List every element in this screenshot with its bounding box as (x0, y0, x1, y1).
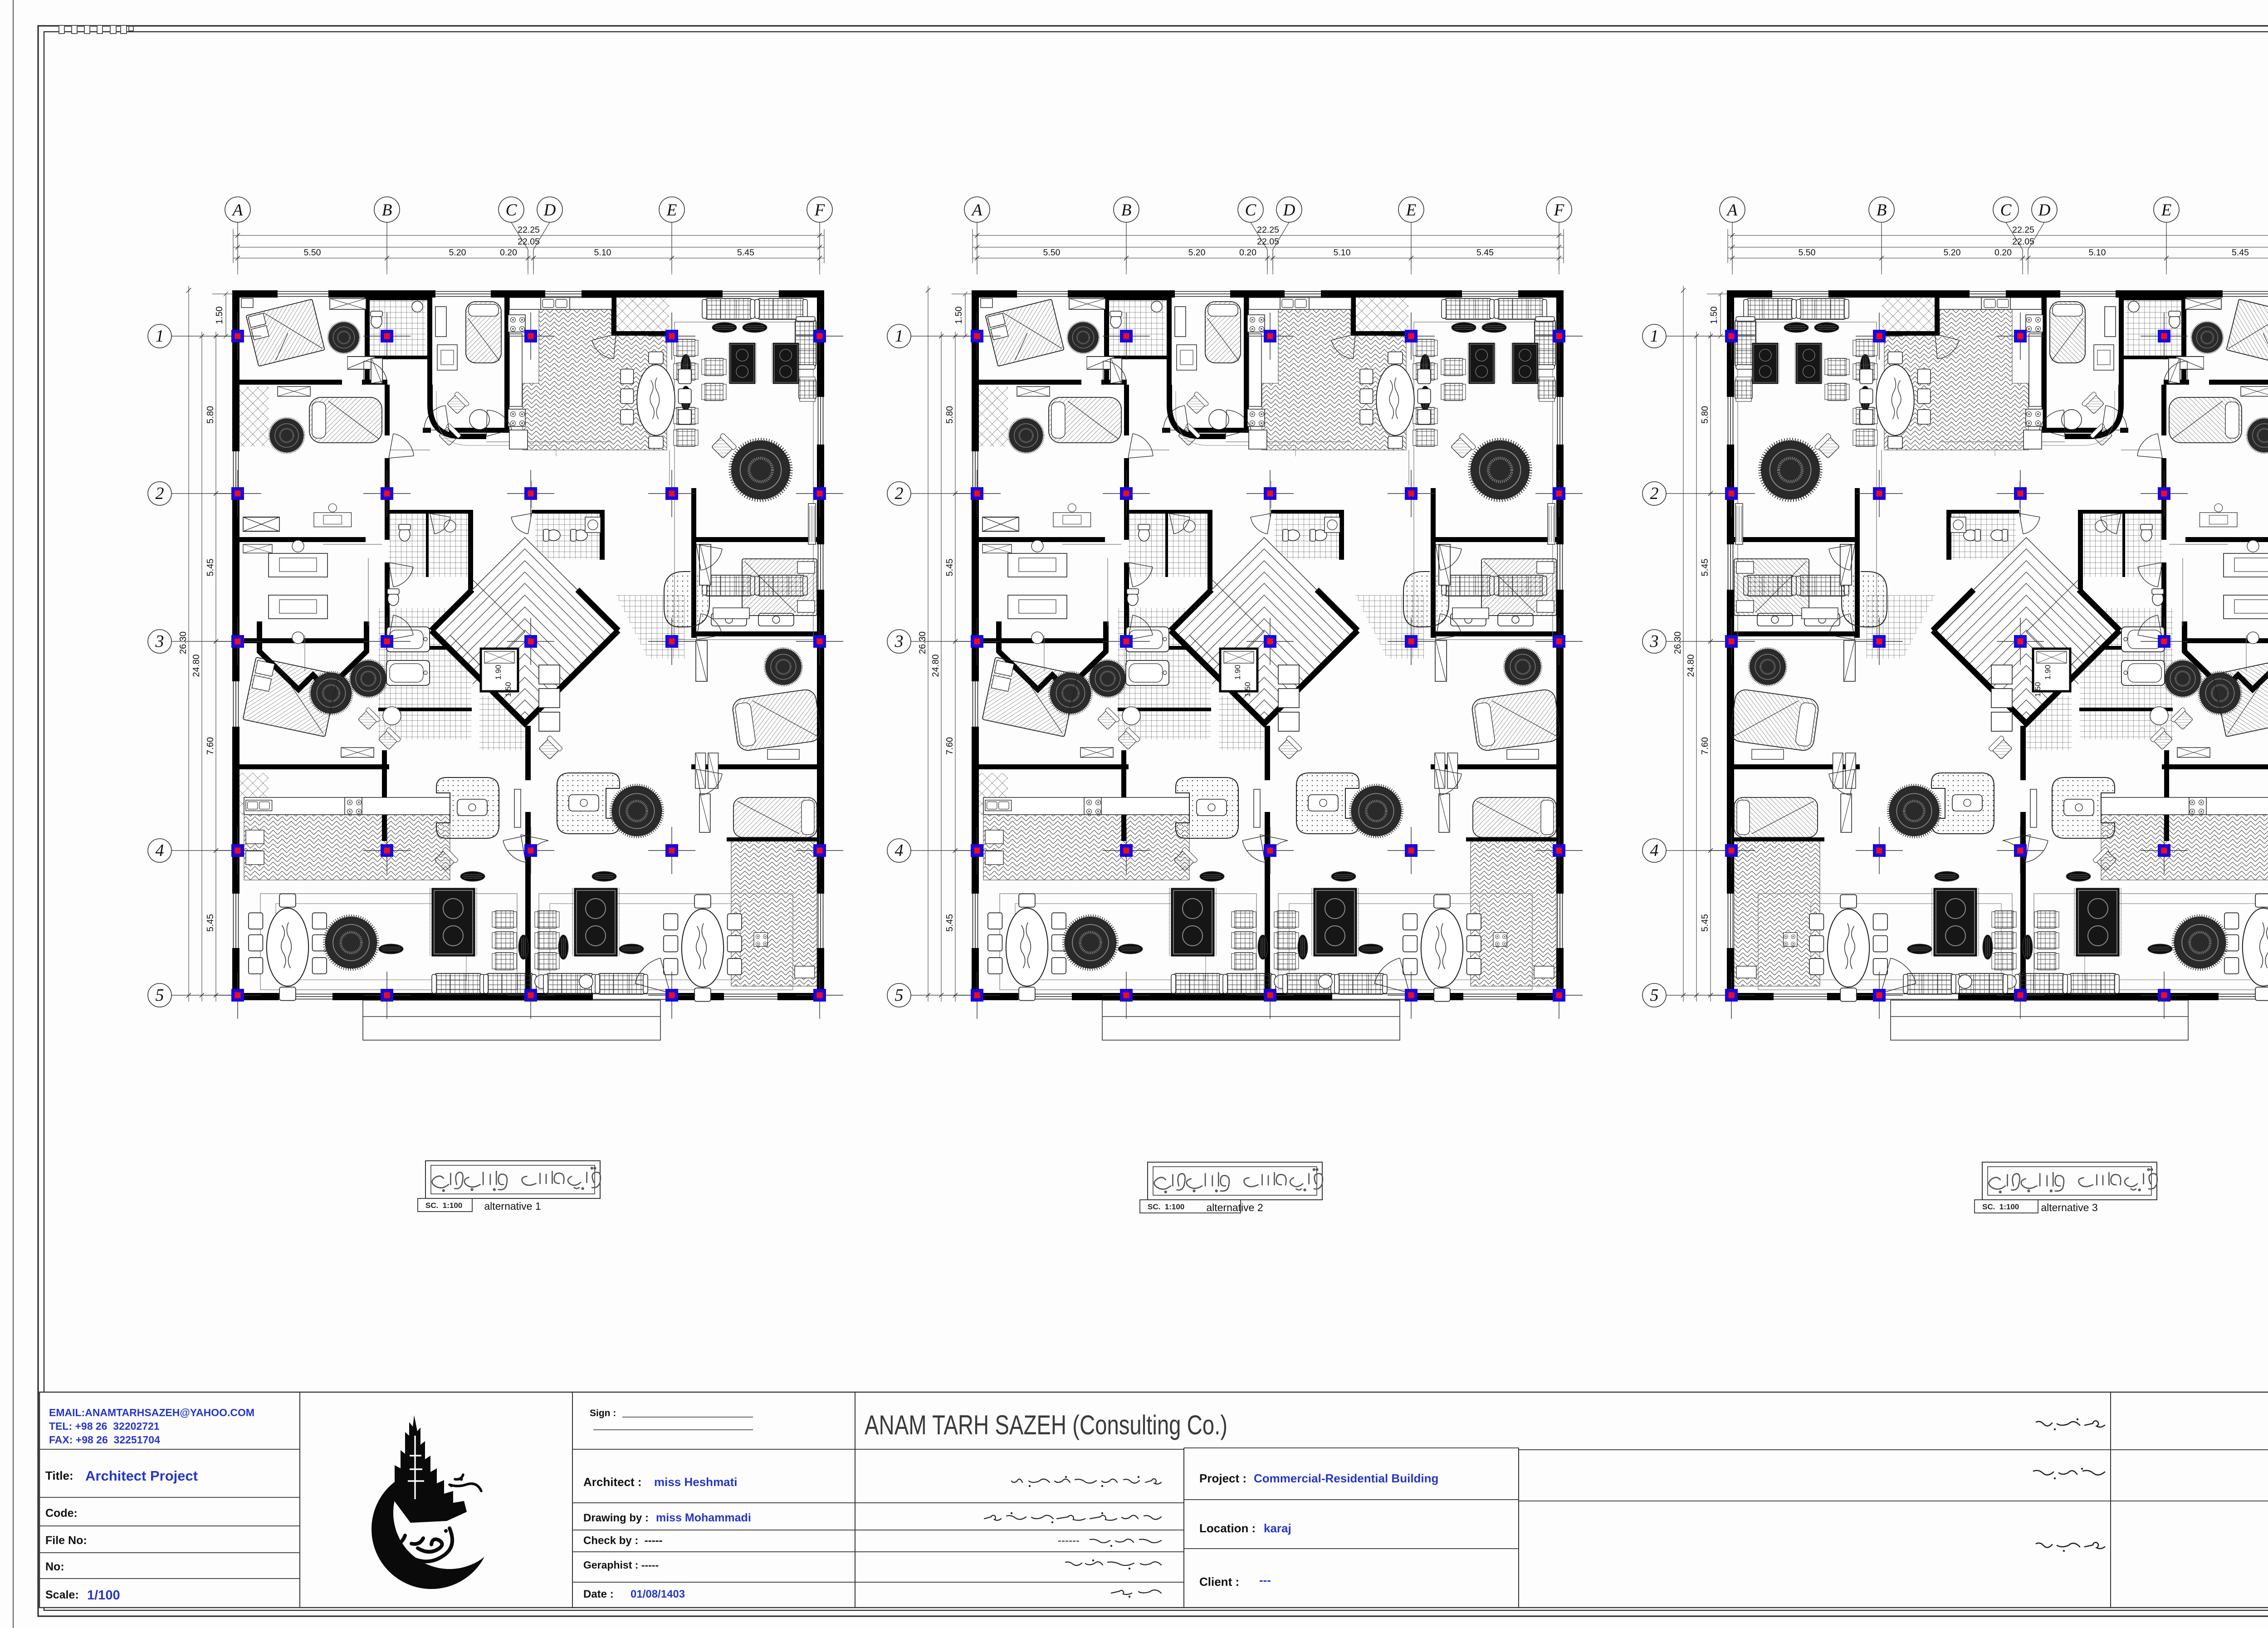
svg-text:5.45: 5.45 (205, 559, 215, 577)
svg-text:5.10: 5.10 (2089, 248, 2106, 258)
svg-text:5: 5 (156, 986, 164, 1005)
svg-text:2: 2 (156, 484, 164, 503)
svg-text:0.20: 0.20 (1239, 248, 1256, 258)
svg-text:E: E (1406, 201, 1417, 220)
svg-text:26.30: 26.30 (918, 631, 928, 654)
svg-text:4: 4 (1650, 841, 1659, 860)
svg-text:B: B (1121, 201, 1132, 220)
svg-text:01/08/1403: 01/08/1403 (631, 1588, 685, 1600)
svg-text:Architect :: Architect : (583, 1475, 642, 1489)
svg-text:1.50: 1.50 (504, 682, 513, 697)
svg-text:A: A (1726, 201, 1738, 220)
svg-text:5.45: 5.45 (2232, 248, 2249, 258)
svg-text:1.90: 1.90 (2043, 665, 2052, 680)
svg-text:0.20: 0.20 (500, 248, 517, 258)
svg-text:A: A (971, 201, 982, 220)
svg-text:Title:: Title: (45, 1469, 73, 1482)
svg-text:0.20: 0.20 (1994, 248, 2012, 258)
svg-text:5.20: 5.20 (1944, 248, 1961, 258)
svg-text:3: 3 (155, 632, 164, 651)
svg-text:ANAM TARH SAZEH (Consulting Co: ANAM TARH SAZEH (Consulting Co.) (865, 1410, 1227, 1440)
svg-text:22.25: 22.25 (1257, 225, 1279, 235)
svg-text:FAX: +98 26 32251704: FAX: +98 26 32251704 (49, 1434, 160, 1446)
svg-text:22.25: 22.25 (518, 225, 540, 235)
svg-text:F: F (1554, 201, 1564, 220)
svg-text:Project :: Project : (1199, 1472, 1246, 1485)
svg-text:22.05: 22.05 (1257, 237, 1279, 247)
svg-text:Architect Project: Architect Project (85, 1468, 198, 1484)
svg-text:22.05: 22.05 (518, 237, 540, 247)
svg-text:26.30: 26.30 (178, 631, 188, 654)
svg-text:7.60: 7.60 (945, 737, 955, 755)
svg-text:3: 3 (894, 632, 904, 651)
svg-text:No:: No: (45, 1560, 64, 1573)
svg-text:B: B (382, 201, 392, 220)
svg-text:4: 4 (156, 841, 164, 860)
svg-text:------: ------ (1058, 1535, 1080, 1547)
svg-text:5.45: 5.45 (1700, 559, 1710, 577)
svg-text:24.80: 24.80 (1686, 654, 1696, 677)
svg-text:1/100: 1/100 (87, 1588, 120, 1603)
svg-text:Location :: Location : (1199, 1521, 1256, 1535)
svg-text:22.05: 22.05 (2012, 237, 2034, 247)
svg-text:Code:: Code: (45, 1507, 78, 1520)
svg-text:alternative 1: alternative 1 (484, 1200, 541, 1212)
svg-text:D: D (1283, 201, 1295, 220)
svg-text:1.90: 1.90 (1233, 665, 1242, 680)
svg-text:D: D (543, 201, 556, 220)
svg-text:24.80: 24.80 (191, 654, 201, 677)
svg-text:Scale:: Scale: (45, 1589, 79, 1601)
svg-text:Geraphist : -----: Geraphist : ----- (583, 1559, 659, 1571)
svg-text:5.20: 5.20 (1188, 248, 1206, 258)
svg-text:SC. 1:100: SC. 1:100 (1982, 1203, 2019, 1211)
svg-text:5: 5 (1650, 986, 1659, 1005)
svg-text:1.50: 1.50 (954, 307, 964, 324)
svg-text:5.50: 5.50 (1043, 248, 1061, 258)
svg-text:24.80: 24.80 (931, 654, 941, 677)
svg-text:5.10: 5.10 (1334, 248, 1351, 258)
svg-text:5.45: 5.45 (737, 248, 754, 258)
svg-text:Sign :: Sign : (590, 1408, 616, 1418)
svg-text:5: 5 (895, 986, 904, 1005)
svg-text:A: A (231, 201, 243, 220)
svg-text:B: B (1877, 201, 1887, 220)
svg-text:E: E (666, 201, 677, 220)
svg-text:1.50: 1.50 (215, 307, 225, 324)
svg-text:1: 1 (895, 327, 904, 346)
svg-text:5.10: 5.10 (594, 248, 611, 258)
svg-text:26.30: 26.30 (1673, 631, 1683, 654)
svg-text:1.50: 1.50 (1709, 307, 1719, 324)
svg-text:alternative 3: alternative 3 (2041, 1202, 2097, 1213)
svg-text:5.45: 5.45 (945, 559, 955, 577)
svg-text:1.50: 1.50 (2033, 682, 2042, 697)
svg-text:E: E (2161, 201, 2172, 220)
svg-text:1: 1 (1650, 327, 1659, 346)
svg-text:Commercial-Residential Buildin: Commercial-Residential Building (1254, 1472, 1438, 1485)
svg-text:SC. 1:100: SC. 1:100 (425, 1201, 462, 1210)
svg-text:C: C (1245, 201, 1257, 220)
svg-text:SC. 1:100: SC. 1:100 (1148, 1203, 1184, 1211)
svg-text:5.80: 5.80 (205, 406, 215, 424)
svg-text:1.90: 1.90 (494, 665, 503, 680)
svg-text:File No:: File No: (45, 1534, 87, 1547)
svg-text:3: 3 (1650, 632, 1659, 651)
svg-text:miss Mohammadi: miss Mohammadi (656, 1511, 751, 1524)
svg-text:5.45: 5.45 (1700, 914, 1710, 932)
svg-text:Check by : -----: Check by : ----- (583, 1535, 663, 1547)
svg-text:5.50: 5.50 (1799, 248, 1816, 258)
svg-text:5.45: 5.45 (205, 914, 215, 932)
svg-text:alternative 2: alternative 2 (1206, 1202, 1263, 1213)
svg-text:2: 2 (895, 484, 904, 503)
svg-text:1: 1 (156, 327, 164, 346)
svg-text:Drawing by :: Drawing by : (583, 1512, 649, 1524)
svg-text:C: C (506, 201, 518, 220)
svg-text:F: F (814, 201, 825, 220)
svg-text:7.60: 7.60 (1700, 737, 1710, 755)
svg-text:5.80: 5.80 (1700, 406, 1710, 424)
svg-text:karaj: karaj (1264, 1521, 1291, 1535)
svg-text:5.45: 5.45 (945, 914, 955, 932)
svg-text:Date :: Date : (583, 1588, 614, 1600)
svg-text:1.50: 1.50 (1243, 682, 1252, 697)
svg-text:miss Heshmati: miss Heshmati (654, 1475, 738, 1489)
svg-text:5.50: 5.50 (304, 248, 321, 258)
svg-text:TEL: +98 26 32202721: TEL: +98 26 32202721 (49, 1420, 160, 1432)
svg-text:5.80: 5.80 (945, 406, 955, 424)
svg-text:C: C (2000, 201, 2012, 220)
svg-text:4: 4 (895, 841, 904, 860)
svg-text:Client :: Client : (1199, 1575, 1239, 1589)
svg-text:7.60: 7.60 (205, 737, 215, 755)
svg-text:5.45: 5.45 (1476, 248, 1494, 258)
svg-text:EMAIL:ANAMTARHSAZEH@YAHOO.COM: EMAIL:ANAMTARHSAZEH@YAHOO.COM (49, 1407, 254, 1418)
svg-text:5.20: 5.20 (449, 248, 466, 258)
svg-text:D: D (2038, 201, 2051, 220)
svg-text:22.25: 22.25 (2012, 225, 2034, 235)
svg-text:---: --- (1259, 1573, 1271, 1587)
svg-text:2: 2 (1650, 484, 1659, 503)
